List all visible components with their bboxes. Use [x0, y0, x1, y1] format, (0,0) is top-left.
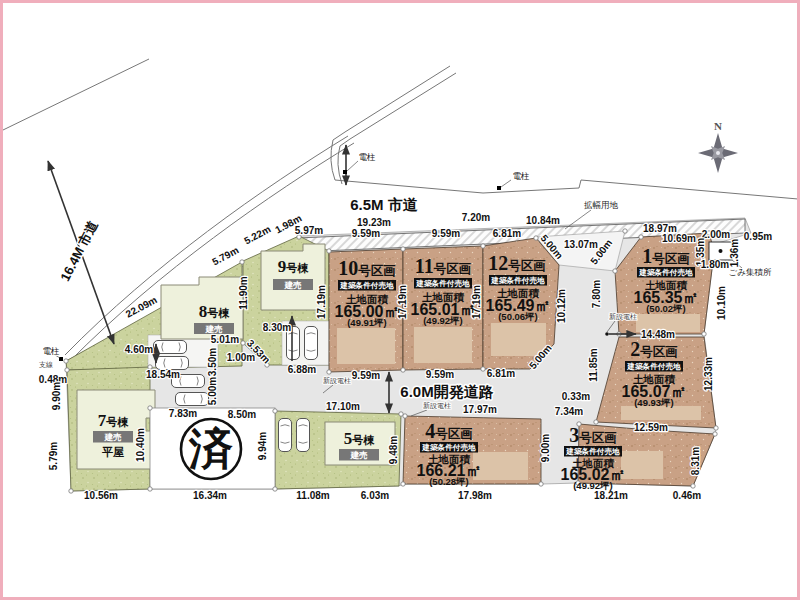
dim-label: 9.59m: [432, 228, 460, 239]
dim-label: 11.90m: [238, 276, 249, 309]
building-title: 5: [344, 429, 353, 448]
dim-label: 8.50m: [228, 409, 256, 420]
guywire-label: 支線: [39, 361, 53, 369]
road-kaihatsu-label: 6.0M開発道路: [400, 383, 493, 400]
svg-text:建築条件付売地: 建築条件付売地: [339, 281, 394, 290]
dim-label: 17.98m: [458, 490, 492, 501]
dim-label: 11.08m: [296, 490, 329, 501]
svg-text:建築条件付売地: 建築条件付売地: [565, 447, 620, 456]
dim-label: 17.19m: [316, 285, 327, 319]
dim-label: 9.48m: [388, 436, 399, 464]
svg-text:建築条件付売地: 建築条件付売地: [415, 279, 470, 288]
lot-tsubo: (49.91坪): [347, 317, 387, 328]
sold-mark: 済: [188, 425, 233, 474]
dim-label: 0.95m: [744, 231, 772, 242]
dim-label: 7.83m: [169, 408, 197, 419]
svg-text:建築条件付売地: 建築条件付売地: [626, 362, 681, 371]
building-title: 9: [278, 257, 287, 276]
dim-label: 10.40m: [135, 428, 146, 462]
lot-title: 1: [642, 245, 652, 267]
dim-label: 9.94m: [257, 432, 268, 460]
dim-label: 17.97m: [463, 404, 497, 415]
lot-tsubo: (49.92坪): [423, 315, 463, 326]
new-pole-label-3: 新設電柱: [609, 312, 637, 321]
pole-label-1: 電柱: [359, 152, 376, 162]
dim-label: 13.07m: [564, 239, 598, 250]
compass-north-label: N: [714, 120, 722, 132]
dim-label: 8.31m: [690, 447, 701, 475]
dim-label: 12.33m: [703, 357, 714, 391]
dim-label: 9.59m: [352, 228, 380, 239]
lot-title: 3: [569, 424, 579, 446]
lot-tsubo: (49.92坪): [573, 480, 613, 491]
dim-label: 1.00m: [227, 352, 255, 363]
pole-label-2: 電柱: [513, 171, 530, 181]
lot-title: 12: [488, 252, 508, 274]
dim-label: 5.79m: [48, 442, 59, 470]
dim-label: 7.80m: [591, 280, 602, 308]
lot-title: 2: [630, 338, 640, 360]
compass-hub: [716, 151, 720, 155]
dim-label: 9.59m: [352, 370, 380, 381]
lot-title: 11: [415, 255, 434, 277]
building-title: 8: [199, 302, 208, 321]
lot-tsubo: (50.28坪): [429, 476, 469, 487]
dim-label: 6.03m: [361, 490, 389, 501]
car-icon: [156, 357, 189, 370]
lot-title: 10: [338, 257, 358, 279]
dim-label: 7.20m: [462, 212, 490, 223]
car-icon: [176, 393, 209, 406]
dim-label: 14.48m: [641, 329, 675, 340]
dim-label: 6.81m: [493, 228, 521, 239]
dim-label: 19.23m: [357, 217, 391, 228]
new-pole-label-2: 新設電柱: [423, 401, 451, 410]
lot-title: 4: [425, 420, 435, 442]
dim-label: 3.50m: [207, 348, 218, 376]
dim-label: 0.33m: [562, 391, 590, 402]
svg-text:建築条件付売地: 建築条件付売地: [421, 443, 476, 452]
dim-label: 0.46m: [673, 490, 701, 501]
dim-label: 18.54m: [146, 369, 180, 380]
new-pole-label-1: 新設電柱: [323, 376, 351, 385]
road-164-label: 16.4M 市道: [57, 218, 100, 283]
dim-label: 16.34m: [193, 490, 227, 501]
dim-label: 9.90m: [51, 382, 62, 410]
building-5-labels: 5号棟 建売: [339, 429, 379, 461]
dim-label: 17.10m: [326, 401, 360, 412]
dim-label: 10.12m: [556, 289, 567, 323]
dim-label: 9.59m: [426, 369, 454, 380]
car-icon: [297, 419, 310, 452]
svg-text:建築条件付売地: 建築条件付売地: [638, 268, 693, 277]
lot-tsubo: (50.06坪): [498, 311, 538, 322]
pole-label-3: 電柱: [43, 346, 60, 356]
svg-text:建売: 建売: [205, 324, 224, 334]
dim-label: 7.34m: [555, 406, 583, 417]
svg-text:建売: 建売: [350, 450, 369, 460]
dim-label: 5.97m: [295, 225, 323, 236]
car-icon: [154, 341, 187, 354]
dim-label: 5.22m: [242, 223, 272, 246]
dim-label: 12.59m: [634, 422, 668, 433]
dim-label: 10.10m: [716, 286, 727, 320]
dim-label: 6.88m: [288, 364, 316, 375]
dim-label: 8.30m: [263, 322, 291, 333]
dim-label: 4.60m: [125, 344, 153, 355]
lot-tsubo: (49.93坪): [634, 397, 674, 408]
dim-label: 6.81m: [487, 368, 515, 379]
site-plan-canvas: N: [0, 0, 800, 600]
lot-tsubo: (50.02坪): [646, 303, 686, 314]
svg-text:建売: 建売: [104, 432, 123, 442]
dim-label: 1.36m: [729, 239, 740, 267]
svg-text:建売: 建売: [284, 280, 303, 290]
dim-label: 1.80m: [701, 259, 729, 270]
dim-label: 5.79m: [210, 244, 240, 267]
garbage-label: ごみ集積所: [729, 267, 772, 277]
site-plan-svg: N: [3, 3, 797, 597]
svg-text:建築条件付売地: 建築条件付売地: [490, 276, 545, 285]
dim-label: 18.21m: [594, 490, 628, 501]
dim-label: 5.00m: [207, 377, 218, 405]
compass: N: [698, 120, 738, 173]
building-9-labels: 9号棟 建売: [273, 257, 313, 290]
dim-label: 2.00m: [702, 229, 730, 240]
dim-label: 10.69m: [662, 233, 696, 244]
dim-label: 11.85m: [588, 348, 599, 381]
dim-label: 10.84m: [526, 215, 560, 226]
building-8-labels: 8号棟 建売: [194, 302, 234, 334]
car-icon: [305, 327, 318, 360]
car-icon: [279, 419, 292, 452]
dim-label: 9.00m: [540, 434, 551, 462]
dim-label: 10.56m: [84, 490, 118, 501]
widening-label: 拡幅用地: [584, 200, 619, 210]
dim-label: 5.01m: [211, 334, 239, 345]
hiraya-label: 平屋: [102, 446, 124, 458]
road-65-label: 6.5M 市道: [350, 196, 419, 213]
